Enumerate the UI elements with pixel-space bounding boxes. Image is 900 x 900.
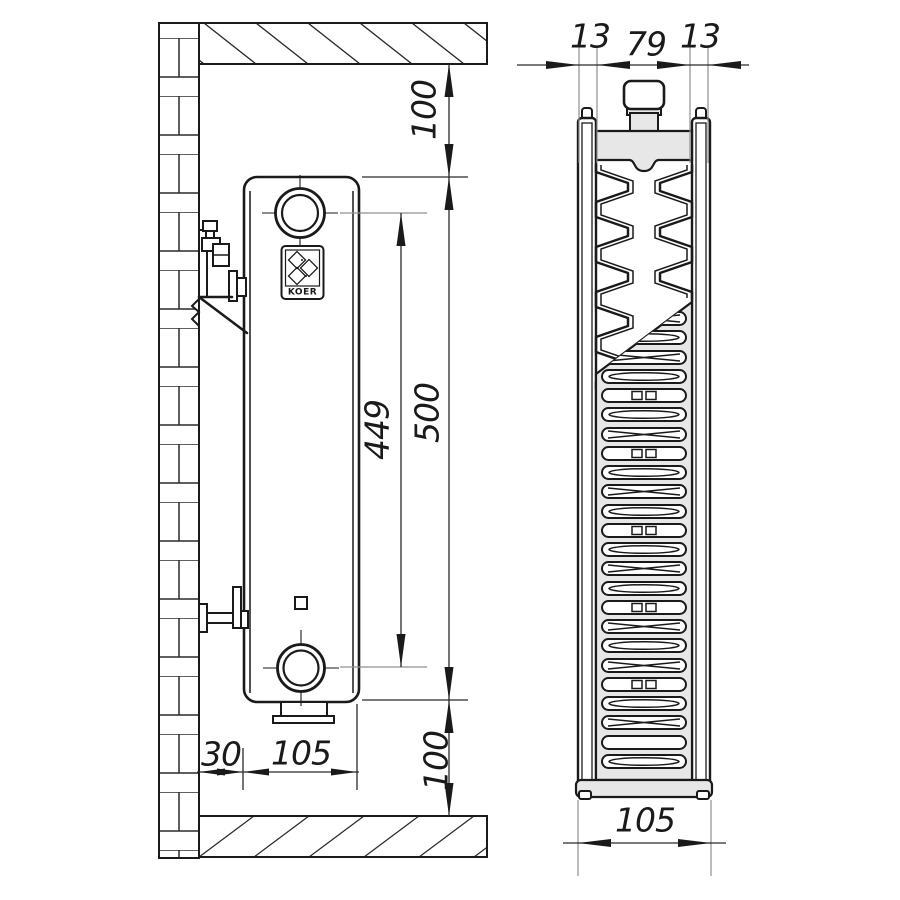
dim-top-clearance: 100 [405, 80, 444, 140]
drain-plug [295, 597, 307, 609]
top-header [596, 131, 692, 171]
dim-panel-front: 13 [680, 17, 720, 56]
koer-logo: KOER [282, 246, 324, 299]
bottom-plate [576, 780, 712, 799]
bottom-connection [281, 702, 327, 716]
front-panel [692, 108, 710, 788]
wall [159, 23, 199, 858]
back-panel [578, 108, 596, 788]
dim-depth-section: 105 [615, 801, 675, 840]
dim-panel-back: 13 [570, 17, 610, 56]
logo-text: KOER [288, 288, 317, 298]
ceiling [199, 23, 487, 64]
radiator-section-view [576, 81, 712, 799]
dim-height: 500 [408, 383, 447, 443]
dim-depth-side: 105 [271, 734, 331, 773]
radiator-installation-drawing: KOER [0, 0, 900, 900]
dim-core: 79 [626, 25, 666, 64]
dim-wall-gap: 30 [201, 735, 241, 774]
air-vent-valve [624, 81, 664, 133]
floor [199, 816, 487, 857]
bottom-bracket [199, 587, 248, 632]
dim-bottom-clearance: 100 [417, 731, 456, 791]
grille [596, 302, 692, 780]
top-bracket [192, 221, 247, 333]
dim-port-spacing: 449 [358, 400, 397, 460]
